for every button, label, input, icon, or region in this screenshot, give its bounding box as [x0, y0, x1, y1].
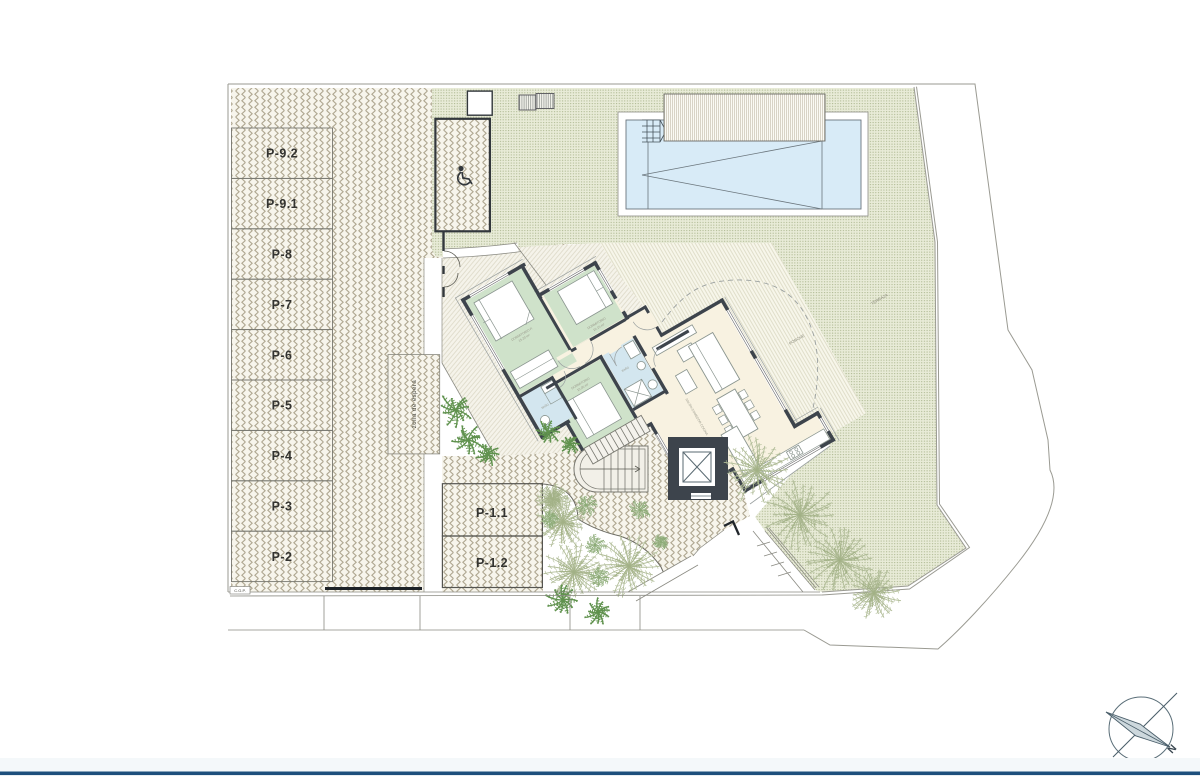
svg-text:P-3: P-3: [272, 500, 293, 514]
svg-text:P-1.2: P-1.2: [476, 556, 508, 570]
svg-text:C.G.P.: C.G.P.: [234, 588, 246, 593]
svg-text:P-7: P-7: [272, 298, 293, 312]
svg-text:P-8: P-8: [272, 248, 293, 262]
svg-text:P-9.1: P-9.1: [266, 197, 298, 211]
svg-text:P-1.1: P-1.1: [476, 506, 508, 520]
svg-text:P-2: P-2: [272, 550, 293, 564]
svg-text:P-9.2: P-9.2: [266, 147, 298, 161]
svg-text:P-6: P-6: [272, 348, 293, 362]
svg-text:zona de espera: zona de espera: [412, 380, 418, 429]
svg-text:P-4: P-4: [272, 449, 293, 463]
svg-text:P-5: P-5: [272, 399, 293, 413]
